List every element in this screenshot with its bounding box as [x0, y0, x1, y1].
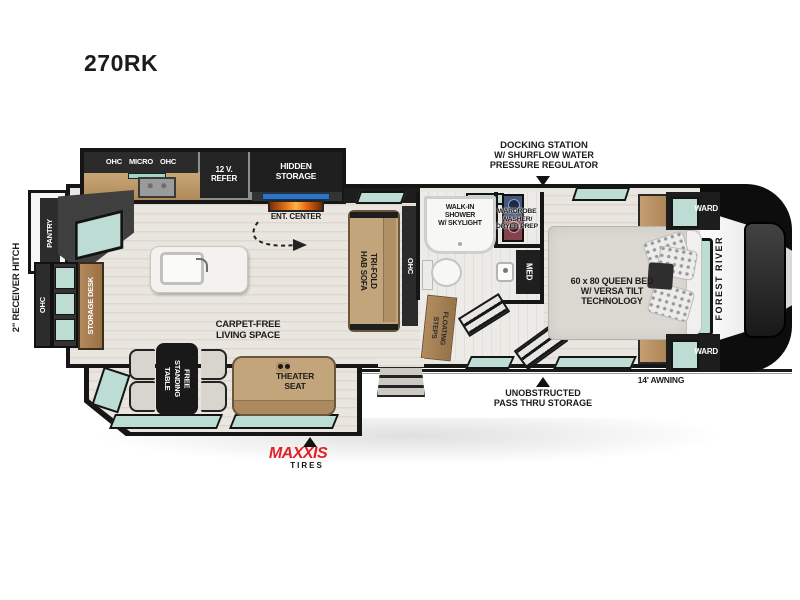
ohc-right-label: OHC [160, 158, 176, 166]
dinette-chair [201, 381, 227, 412]
pass-thru-callout: UNOBSTRUCTED PASS THRU STORAGE [463, 389, 623, 409]
refrigerator: 12 V. REFER [200, 152, 248, 198]
swivel-arrow-icon [238, 218, 320, 256]
rear-ohc: OHC [34, 262, 52, 348]
bath-wall-left [416, 192, 420, 300]
theater-seat-label: THEATER SEAT [250, 372, 340, 391]
bottom-window-1 [465, 356, 515, 369]
entry-steps-icon [377, 367, 425, 397]
ohc-left-label: OHC [106, 158, 122, 166]
desk-hutch [52, 262, 78, 348]
awning-label: 14' AWNING [616, 376, 706, 386]
bedroom-top-window [572, 187, 631, 201]
theater-window [229, 414, 339, 429]
micro-label: MICRO [129, 158, 153, 166]
shower-drain-icon [458, 242, 462, 246]
bed-headboard [686, 230, 702, 336]
wardrobe-washer-label: WARDROBE WASHER/ DRYER PREP [488, 208, 546, 231]
med-cabinet: MED [516, 250, 540, 294]
receiver-hitch-label: 2" RECEIVER HITCH [6, 218, 28, 358]
tires-logo: MAXXIS TIRES [258, 445, 338, 470]
stove-icon [138, 177, 176, 198]
dinette-chair [201, 349, 227, 380]
dinette-chair [129, 381, 155, 412]
sofa-label: TRI-FOLD HAB SOFA [348, 218, 388, 324]
vanity-sink [496, 262, 514, 282]
entry-door-opening [378, 358, 424, 367]
docking-station-callout: DOCKING STATION W/ SHURFLOW WATER PRESSU… [462, 141, 626, 171]
toilet-icon [431, 258, 462, 287]
floorplan-canvas: 270RK 2" RECEIVER HITCH 14' AWNING OHC M… [0, 0, 800, 600]
pantry: PANTRY [40, 198, 60, 268]
top-window-sofa [356, 191, 407, 204]
dinette-window [109, 414, 223, 429]
free-standing-table: FREE STANDING TABLE [156, 343, 198, 415]
shower-label: WALK-IN SHOWER W/ SKYLIGHT [423, 204, 497, 227]
faucet-icon [196, 258, 208, 272]
wardrobe-top: WARD [666, 192, 720, 230]
hidden-storage: HIDDEN STORAGE [250, 152, 342, 192]
carpet-free-label: CARPET-FREE LIVING SPACE [196, 320, 300, 341]
storage-desk: STORAGE DESK [78, 262, 104, 350]
bottom-window-2 [553, 356, 637, 369]
brand-cap-label: FOREST RIVER [714, 236, 724, 321]
fireplace-icon [268, 200, 324, 212]
dinette-chair [129, 349, 155, 380]
wardrobe-bottom: WARD [666, 334, 720, 372]
bed-label: 60 x 80 QUEEN BED W/ VERSA TILT TECHNOLO… [552, 276, 672, 306]
page-title: 270RK [84, 50, 158, 77]
washer-wall-bottom [494, 244, 544, 248]
tv-icon [262, 193, 330, 200]
docking-arrow-icon [536, 176, 550, 186]
pass-thru-arrow-icon [536, 377, 550, 387]
kitchen-ohc-band: OHC MICRO OHC [84, 152, 198, 173]
